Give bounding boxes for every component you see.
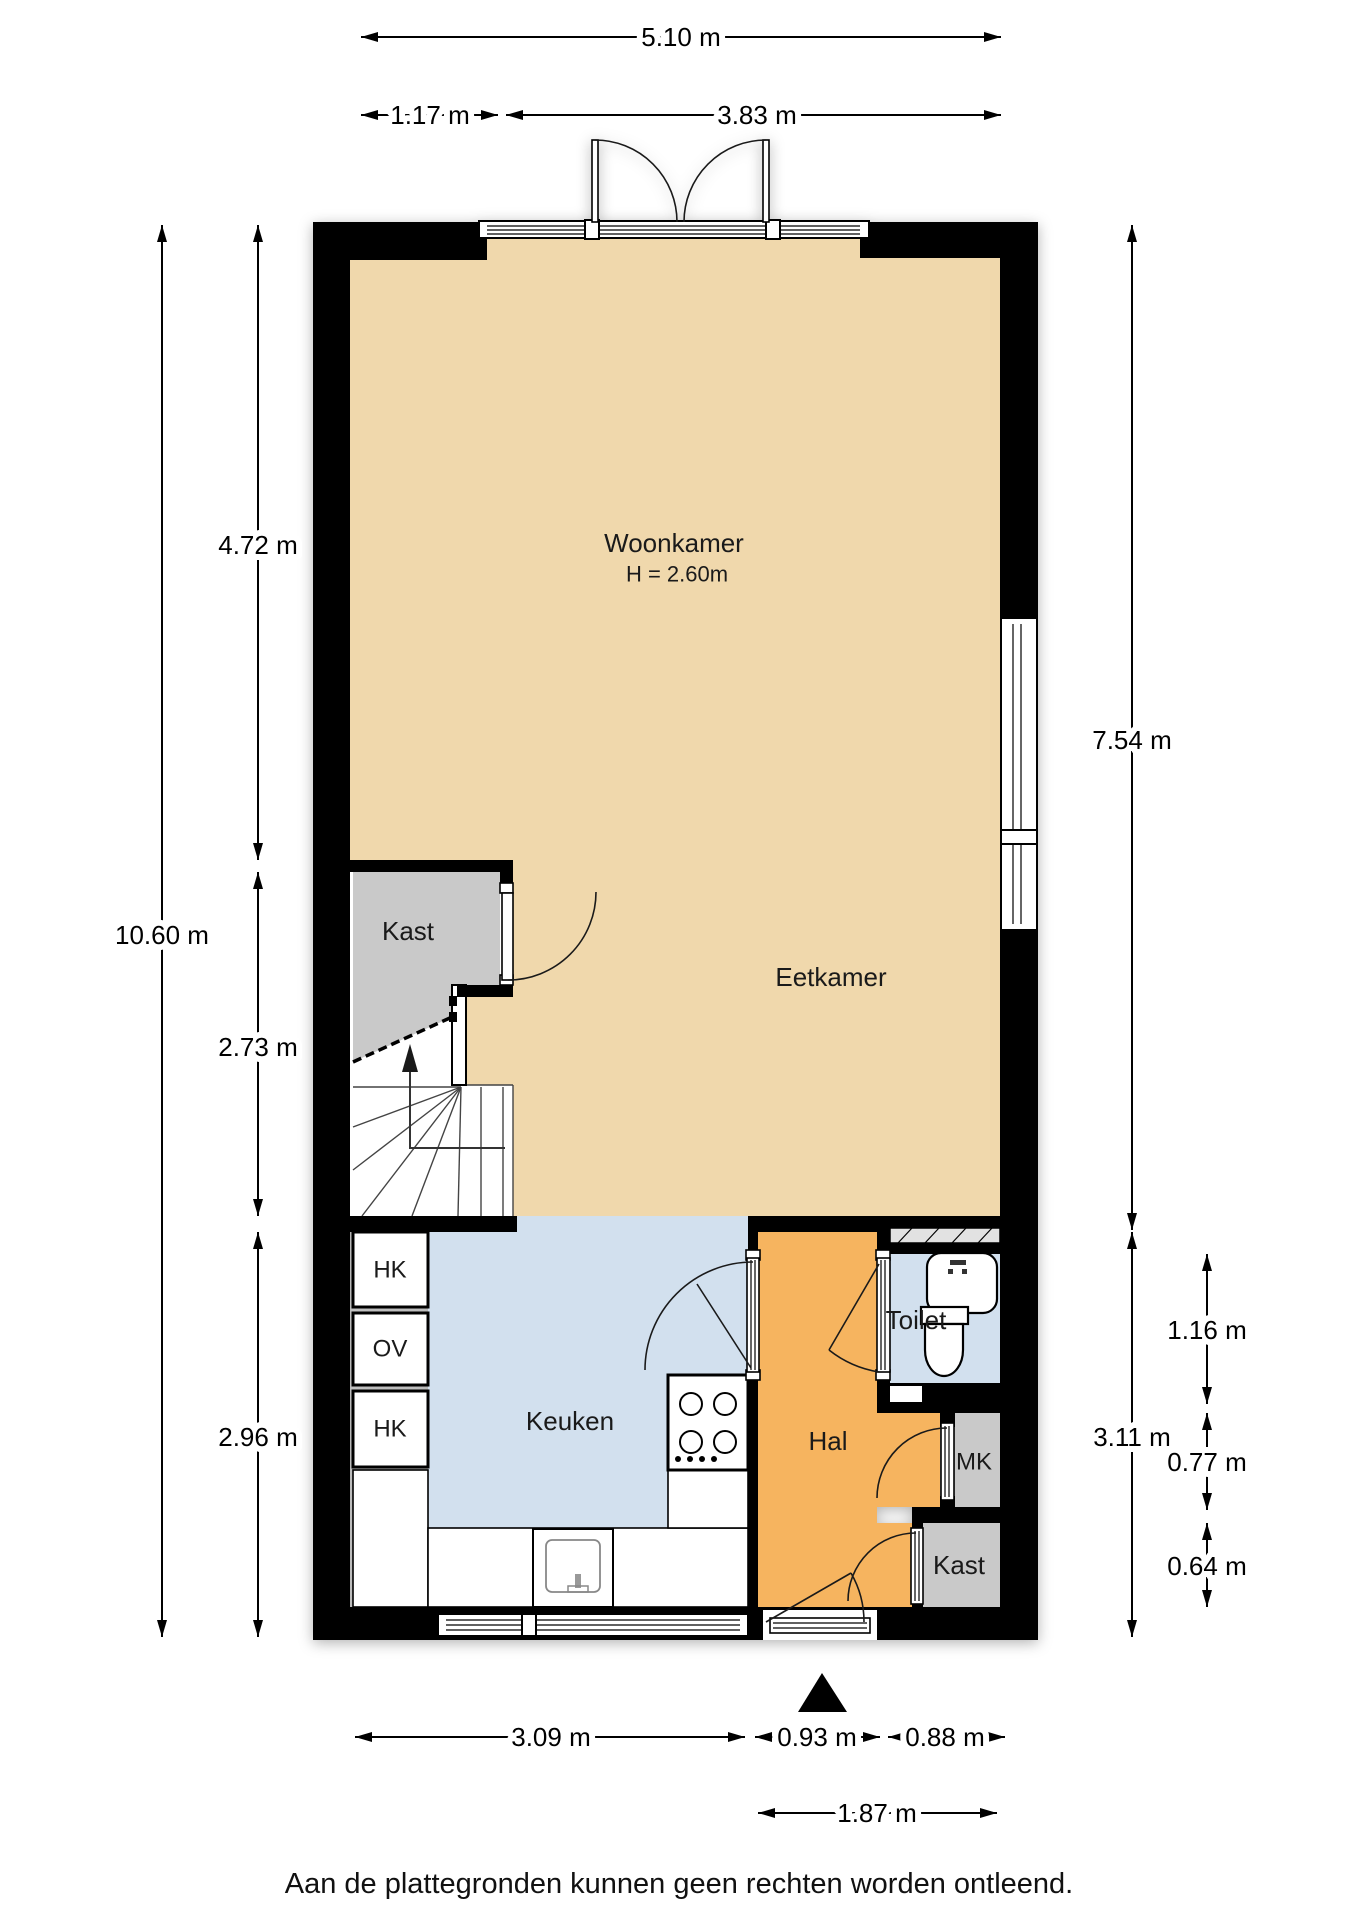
dim-right-upper-label: 7.54 m xyxy=(1092,725,1172,755)
woonkamer-label: Woonkamer xyxy=(604,528,744,558)
toilet-label: Toilet xyxy=(886,1305,947,1335)
dim-top-left-label: 1.17 m xyxy=(390,100,470,130)
kitchen-counter-left xyxy=(353,1470,428,1607)
wall-keuken-hal-b xyxy=(748,1373,758,1607)
wall-niche xyxy=(890,1386,922,1402)
wall-mk-kast xyxy=(912,1507,1000,1523)
hk-bottom-label: HK xyxy=(373,1416,406,1443)
kitchen-sink xyxy=(533,1529,613,1607)
stair-screen-notch xyxy=(449,996,457,1006)
floorplan-page: Woonkamer H = 2.60m Eetkamer Kast Keuken… xyxy=(0,0,1358,1920)
wall-kast-north xyxy=(350,860,513,872)
dim-right-toilet-label: 1.16 m xyxy=(1167,1315,1247,1345)
keuken-label: Keuken xyxy=(526,1406,614,1436)
floorplan-svg: Woonkamer H = 2.60m Eetkamer Kast Keuken… xyxy=(0,0,1358,1920)
dim-bottom-right: 0.88 m xyxy=(888,1722,1005,1752)
dim-left-middle-label: 2.73 m xyxy=(218,1032,298,1062)
ov-label: OV xyxy=(373,1336,408,1363)
dim-right-mk: 0.77 m xyxy=(1167,1413,1247,1510)
wall-shaft-south xyxy=(890,1243,1000,1254)
dim-top-right-label: 3.83 m xyxy=(717,100,797,130)
dim-right-kast: 0.64 m xyxy=(1167,1523,1247,1607)
stair-screen-notch xyxy=(449,1012,457,1022)
dim-top-total-label: 5.10 m xyxy=(641,22,721,52)
footer-disclaimer: Aan de plattegronden kunnen geen rechten… xyxy=(285,1868,1073,1900)
dim-top-left: 1.17 m xyxy=(361,100,498,130)
dim-bottom-right-label: 0.88 m xyxy=(905,1722,985,1752)
window-east xyxy=(1001,618,1037,930)
wall-east-upper xyxy=(1000,222,1038,620)
wall-north-west-block xyxy=(313,222,487,260)
eetkamer-label: Eetkamer xyxy=(775,962,887,992)
washbasin-tap xyxy=(950,1260,966,1265)
dim-bottom-entry-label: 1.87 m xyxy=(837,1798,917,1828)
hal-label: Hal xyxy=(808,1426,847,1456)
dim-bottom-entry: 1.87 m xyxy=(758,1798,997,1828)
dim-bottom-keuken-label: 3.09 m xyxy=(511,1722,591,1752)
dim-right-toilet: 1.16 m xyxy=(1167,1254,1247,1404)
window-kitchen-south xyxy=(438,1614,748,1636)
double-garden-door xyxy=(592,140,769,222)
dim-left-middle: 2.73 m xyxy=(218,872,298,1216)
hk-top-label: HK xyxy=(373,1257,406,1284)
stove xyxy=(668,1375,748,1470)
dim-bottom-keuken: 3.09 m xyxy=(355,1722,745,1752)
woonkamer-height-note: H = 2.60m xyxy=(626,562,728,587)
dim-left-total-label: 10.60 m xyxy=(115,920,209,950)
floor-plan: Woonkamer H = 2.60m Eetkamer Kast Keuken… xyxy=(313,140,1038,1640)
wall-stair-south xyxy=(350,1216,517,1232)
dining-pocket-floor xyxy=(466,997,513,1085)
hal-floor-east xyxy=(877,1413,940,1507)
dim-right-mk-label: 0.77 m xyxy=(1167,1447,1247,1477)
dim-bottom-hal-label: 0.93 m xyxy=(777,1722,857,1752)
dim-left-total: 10.60 m xyxy=(115,225,209,1637)
entrance-north-arrow-icon xyxy=(798,1673,847,1712)
hal-floor xyxy=(758,1232,877,1612)
dim-bottom-hal: 0.93 m xyxy=(755,1722,880,1752)
dim-top-right: 3.83 m xyxy=(506,100,1001,130)
dim-right-lower: 3.11 m xyxy=(1093,1232,1171,1637)
dim-left-lower-label: 2.96 m xyxy=(218,1422,298,1452)
dim-right-lower-label: 3.11 m xyxy=(1093,1422,1171,1452)
wall-west xyxy=(313,222,350,1640)
wall-hal-north xyxy=(748,1216,877,1232)
wall-shaft-north xyxy=(877,1216,1000,1228)
mk-label: MK xyxy=(956,1449,992,1476)
kast-lower-label: Kast xyxy=(933,1550,986,1580)
dim-right-upper: 7.54 m xyxy=(1092,225,1172,1230)
dim-left-lower: 2.96 m xyxy=(218,1232,298,1637)
wall-kast-south xyxy=(457,985,513,997)
wall-east-lower xyxy=(1000,928,1038,1640)
dim-left-upper-label: 4.72 m xyxy=(218,530,298,560)
dim-right-kast-label: 0.64 m xyxy=(1167,1551,1247,1581)
kast-upper-label: Kast xyxy=(382,916,435,946)
window-north xyxy=(479,220,869,239)
dim-top-total: 5.10 m xyxy=(361,22,1001,52)
dim-left-upper: 4.72 m xyxy=(218,225,298,860)
duct-shaft xyxy=(890,1228,1000,1243)
